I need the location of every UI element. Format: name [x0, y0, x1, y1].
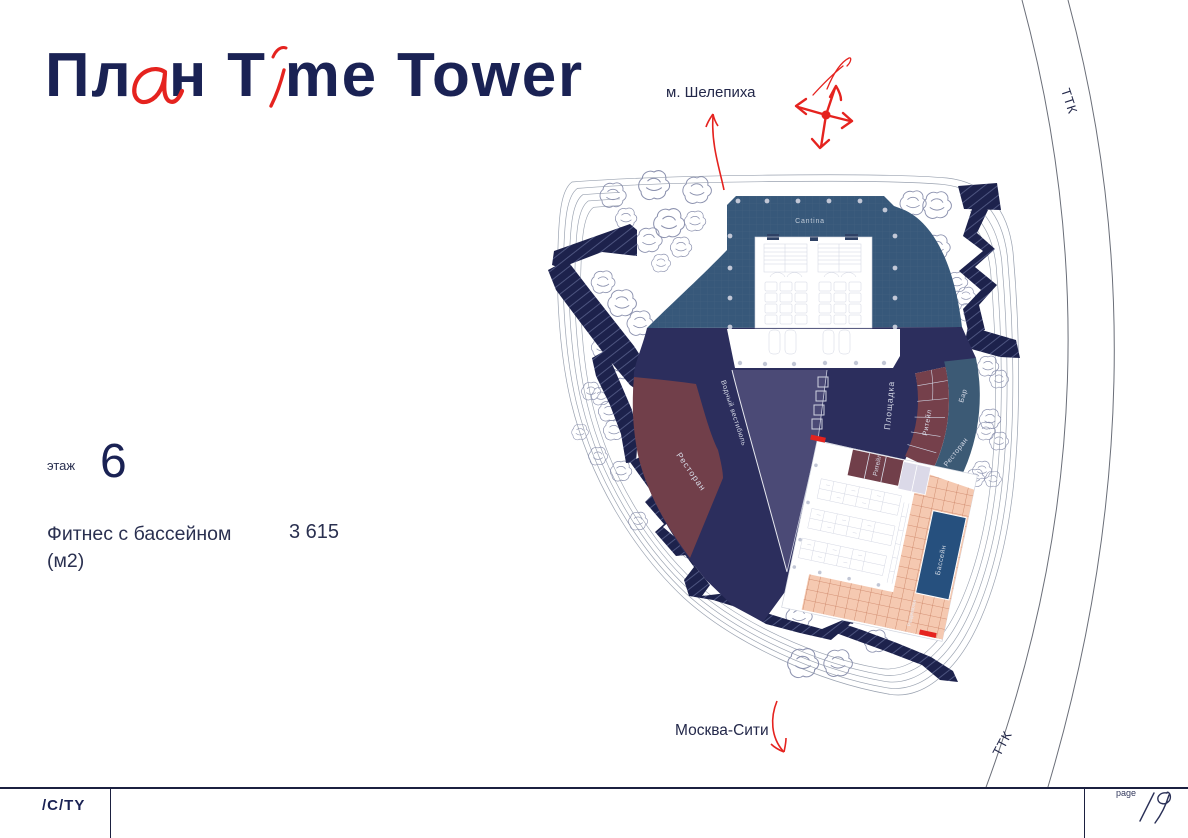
svg-text:ТТК: ТТК — [989, 728, 1015, 758]
svg-text:Cantina: Cantina — [795, 218, 825, 225]
svg-text:ТТК: ТТК — [1058, 86, 1080, 116]
